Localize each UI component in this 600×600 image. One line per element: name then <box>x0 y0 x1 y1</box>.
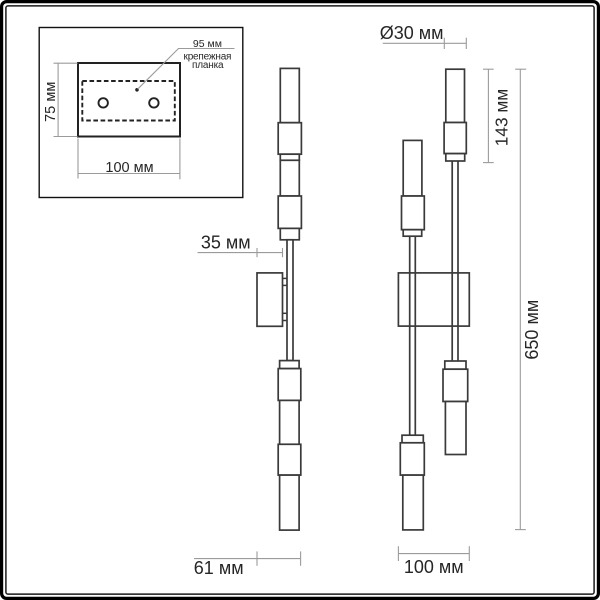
svg-text:650 мм: 650 мм <box>522 300 542 360</box>
svg-text:35 мм: 35 мм <box>201 232 251 252</box>
svg-text:100 мм: 100 мм <box>105 160 153 176</box>
svg-text:75 мм: 75 мм <box>43 82 59 122</box>
svg-text:95 мм: 95 мм <box>193 38 222 50</box>
svg-text:планка: планка <box>192 60 224 71</box>
svg-text:61 мм: 61 мм <box>194 558 244 578</box>
svg-text:100 мм: 100 мм <box>404 557 464 577</box>
svg-text:143 мм: 143 мм <box>491 89 511 146</box>
svg-text:Ø30 мм: Ø30 мм <box>380 23 444 43</box>
